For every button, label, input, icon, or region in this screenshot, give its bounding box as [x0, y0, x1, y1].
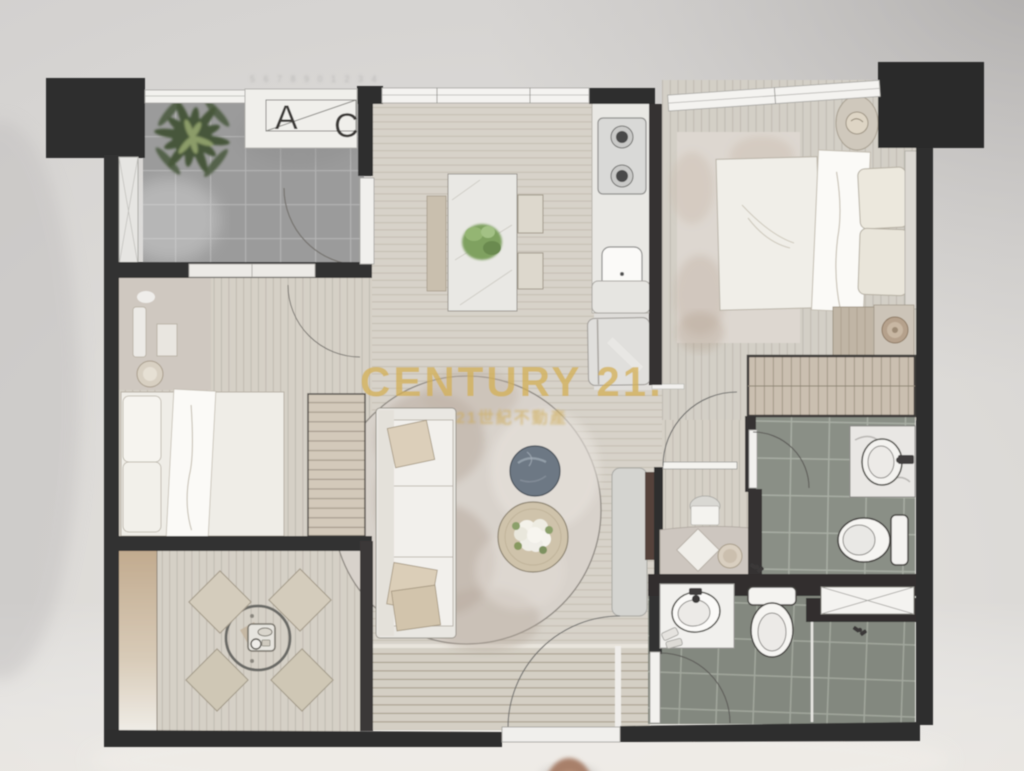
svg-text:CENTURY 21.: CENTURY 21.: [360, 358, 664, 405]
svg-text:5 6 7 8 9 0 1 2 3 4: 5 6 7 8 9 0 1 2 3 4: [250, 74, 380, 84]
svg-text:A: A: [275, 99, 298, 137]
svg-text:C: C: [334, 107, 359, 145]
svg-text:21世紀不動產: 21世紀不動產: [456, 408, 568, 427]
